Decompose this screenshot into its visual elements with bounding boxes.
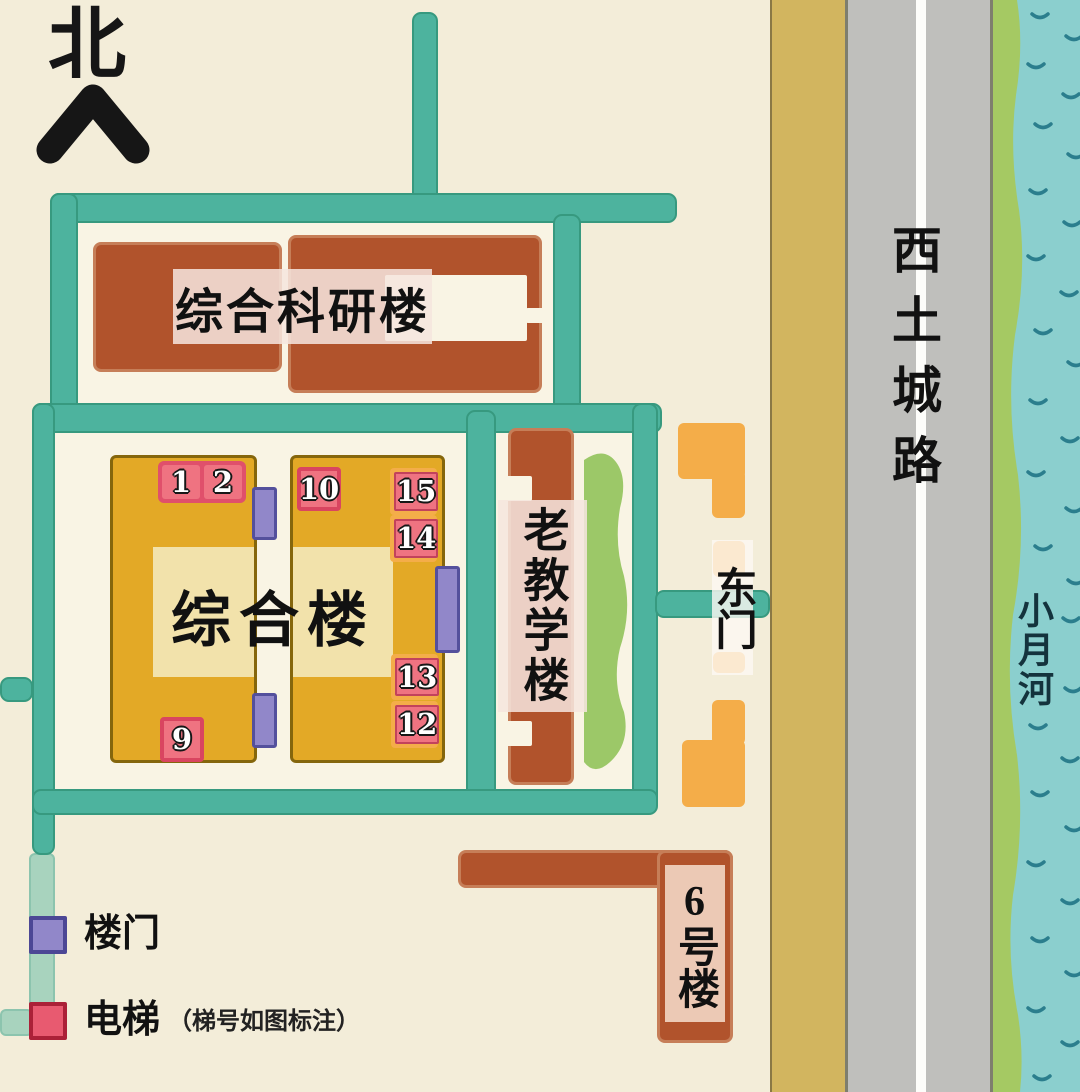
wave-mark [1035, 124, 1051, 128]
wave-mark [1028, 1008, 1044, 1012]
east-building-south-a [712, 700, 745, 745]
elevator-number-9: 9 [172, 725, 192, 754]
elevator-number-14: 14 [396, 524, 436, 553]
research-building-gap [526, 308, 545, 323]
wave-mark [1032, 792, 1048, 796]
wave-mark [1062, 1042, 1078, 1046]
legend-elevator-swatch [29, 1002, 67, 1040]
elevator-number-10: 10 [299, 475, 339, 504]
teaching-building-label: 老教学楼 [498, 500, 587, 712]
wave-mark [1030, 190, 1046, 194]
elevator-marker-15: 15 [390, 468, 437, 515]
north-label: 北 [48, 6, 126, 84]
door-marker-south [252, 693, 277, 748]
path-research-right [553, 214, 581, 414]
elevator-marker-10: 10 [297, 467, 341, 511]
wave-marks [1028, 14, 1080, 1080]
wave-mark [1032, 14, 1048, 18]
wave-mark [1066, 827, 1080, 831]
path-west-entry [0, 677, 33, 702]
elevator-marker-13: 13 [391, 654, 438, 700]
elevator-marker-14: 14 [390, 515, 437, 562]
wave-mark [1068, 362, 1080, 366]
legend-door-label: 楼门 [84, 914, 160, 952]
legend-elevator-label: 电梯 [84, 1000, 160, 1038]
river-name-label: 小月河 [1021, 592, 1059, 722]
wave-mark [1032, 938, 1048, 942]
river-bank [993, 0, 1022, 1092]
elevator-number-1: 1 [171, 468, 191, 497]
roadside-strip [770, 0, 845, 1092]
elevator-marker-1-2: 1 2 [158, 461, 246, 503]
wave-mark [1062, 900, 1078, 904]
wave-mark [1030, 400, 1046, 404]
elevator-marker-9: 9 [160, 717, 204, 762]
wave-mark [1066, 36, 1080, 40]
wave-mark [1065, 688, 1080, 692]
wave-mark [1062, 438, 1078, 442]
path-research-left [50, 193, 78, 433]
building6-label: 6号楼 [665, 865, 725, 1022]
teaching-building-notch-lower [505, 721, 532, 746]
elevator-number-2: 2 [213, 468, 233, 497]
north-arrow-icon [34, 84, 154, 164]
teaching-building-notch-upper [505, 476, 532, 501]
door-marker-east [435, 566, 460, 653]
wave-mark [1030, 725, 1046, 729]
elevator-marker-12: 12 [391, 701, 438, 748]
wave-mark [1064, 222, 1080, 226]
elevator-number-15: 15 [396, 477, 436, 506]
main-building-label: 综合楼 [150, 581, 396, 649]
elevator-number-13: 13 [397, 663, 437, 692]
wave-mark [1066, 972, 1080, 976]
path-bottom-horizontal [32, 789, 658, 815]
research-building-label: 综合科研楼 [173, 269, 432, 344]
path-north-vertical [412, 12, 438, 212]
wave-mark [1035, 330, 1051, 334]
path-research-top [50, 193, 677, 223]
wave-mark [1062, 758, 1078, 762]
legend-elevator-note: （梯号如图标注） [168, 1010, 360, 1034]
wave-mark [1068, 580, 1080, 584]
wave-mark [1028, 472, 1044, 476]
east-building-north-b [712, 470, 745, 518]
wave-mark [1061, 292, 1077, 296]
road-name-label: 西土城路 [897, 214, 949, 514]
road-center-line [916, 0, 926, 1092]
wave-mark [1063, 94, 1079, 98]
door-marker-north [252, 487, 277, 540]
legend-door-swatch [29, 916, 67, 954]
path-main-left [32, 403, 55, 855]
wave-mark [1028, 862, 1044, 866]
river-bank-and-waves [990, 0, 1080, 1092]
wave-mark [1028, 64, 1044, 68]
east-building-south-b [682, 740, 745, 807]
wave-mark [1034, 1076, 1050, 1080]
wave-mark [1028, 256, 1044, 260]
path-main-right [466, 410, 496, 805]
campus-map-canvas: 西土城路 小月河 1 2 [0, 0, 1080, 1092]
east-gate-label: 东门 [712, 540, 753, 675]
wave-mark [1035, 546, 1051, 550]
wave-mark [1068, 154, 1080, 158]
wave-mark [1063, 618, 1079, 622]
wave-mark [1066, 508, 1080, 512]
elevator-number-12: 12 [397, 710, 437, 739]
